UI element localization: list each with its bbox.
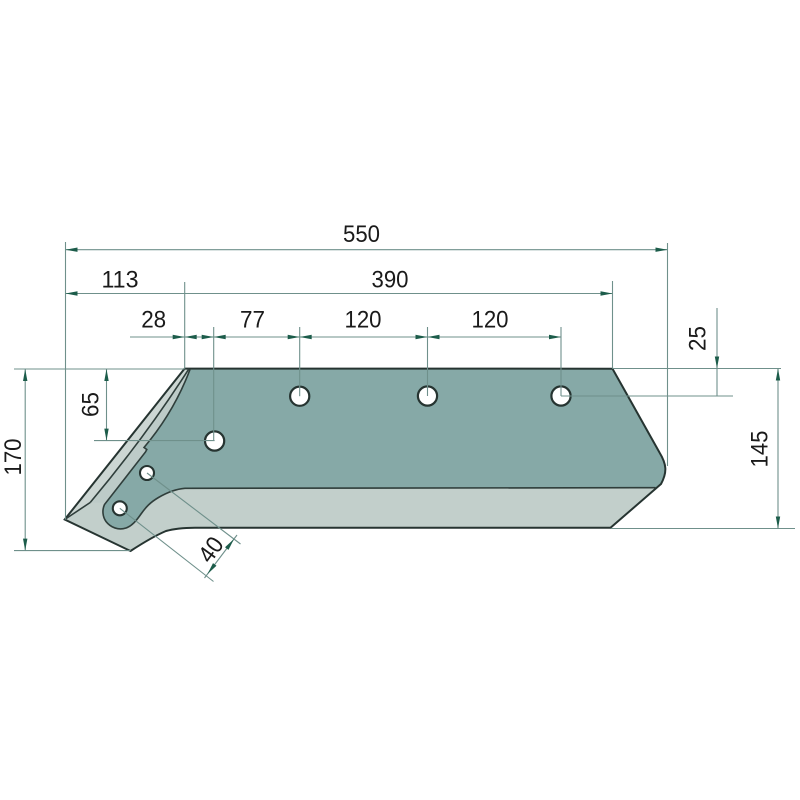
svg-text:120: 120 (472, 307, 509, 334)
svg-text:65: 65 (78, 392, 105, 417)
svg-text:25: 25 (685, 326, 712, 351)
svg-text:113: 113 (102, 267, 139, 294)
svg-text:77: 77 (240, 307, 265, 334)
svg-text:120: 120 (345, 307, 382, 334)
svg-text:170: 170 (0, 439, 27, 476)
svg-text:550: 550 (343, 221, 380, 248)
svg-text:145: 145 (747, 431, 774, 468)
svg-text:390: 390 (372, 267, 409, 294)
svg-text:28: 28 (141, 307, 166, 334)
